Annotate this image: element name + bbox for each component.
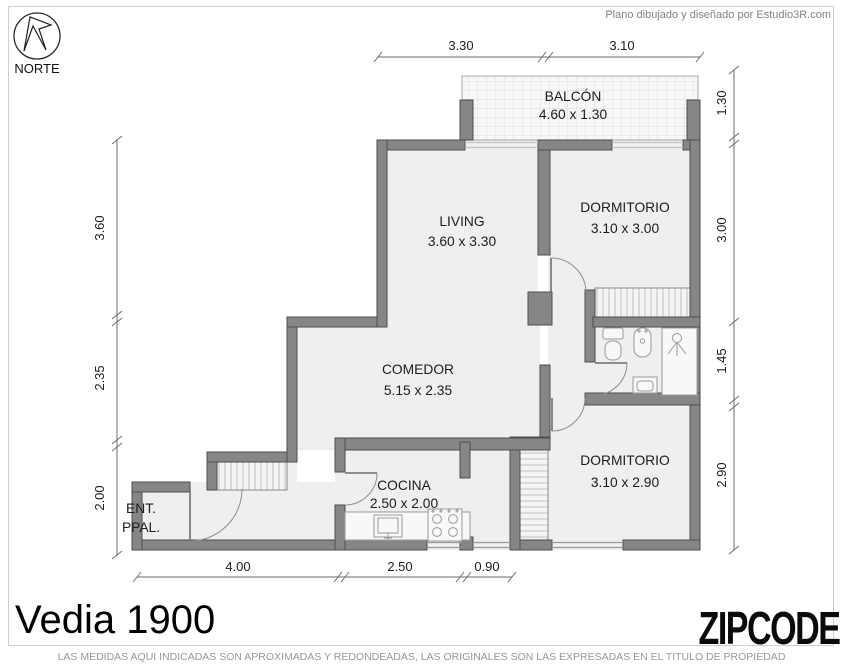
dimension-right: 1.30 3.00 1.45 2.90: [714, 66, 739, 554]
dim-bottom-1: 4.00: [225, 559, 250, 574]
stove-icon: [428, 509, 462, 541]
dim-top-1: 3.30: [448, 38, 473, 53]
kitchen-fixtures: [345, 509, 470, 542]
dim-right-3: 1.45: [714, 348, 729, 373]
closet-dormitorio-1: [595, 288, 690, 317]
disclaimer-text: LAS MEDIDAS AQUI INDICADAS SON APROXIMAD…: [0, 651, 843, 663]
north-arrow-icon: [24, 17, 51, 51]
room-label-cocina: COCINA: [377, 478, 431, 493]
bath-sink-icon: [633, 377, 657, 393]
room-label-living: LIVING: [439, 214, 484, 229]
dim-left-2: 2.35: [92, 365, 107, 390]
toilet-icon: [603, 328, 623, 360]
dimension-left: 3.60 2.35 2.00: [92, 136, 122, 559]
room-label-dormitorio-2: DORMITORIO: [580, 453, 670, 468]
bidet-icon: [634, 328, 651, 357]
room-size-dormitorio-2: 3.10 x 2.90: [591, 475, 660, 490]
dim-bottom-3: 0.90: [474, 559, 499, 574]
room-size-living: 3.60 x 3.30: [428, 234, 497, 249]
room-label-dormitorio-1: DORMITORIO: [580, 200, 670, 215]
dim-bottom-2: 2.50: [387, 559, 412, 574]
room-size-balcon: 4.60 x 1.30: [539, 107, 608, 122]
room-label-balcon: BALCÓN: [545, 88, 602, 104]
closet-dormitorio-2: [520, 447, 548, 543]
compass: NORTE: [14, 13, 60, 76]
dimension-top: 3.30 3.10: [374, 38, 704, 62]
compass-label: NORTE: [14, 61, 60, 76]
room-label-entrada-1: ENT.: [126, 501, 156, 516]
closet-entry: [217, 458, 287, 490]
dim-top-2: 3.10: [609, 38, 634, 53]
page-title: Vedia 1900: [15, 598, 215, 643]
zipcode-logo: ZIPCODE: [698, 601, 839, 655]
dimension-bottom: 4.00 2.50 0.90: [133, 559, 516, 582]
room-label-entrada-2: PPAL.: [122, 520, 160, 535]
shower-icon: [662, 328, 697, 395]
room-size-comedor: 5.15 x 2.35: [384, 383, 453, 398]
dim-left-3: 2.00: [92, 485, 107, 510]
room-label-comedor: COMEDOR: [382, 362, 454, 377]
room-size-dormitorio-1: 3.10 x 3.00: [591, 221, 660, 236]
floor-plan-drawing: 3.30 3.10 4.00 2.50 0.90 3.60 2.35 2.00 …: [0, 0, 843, 600]
dim-right-2: 3.00: [714, 217, 729, 242]
dim-left-1: 3.60: [92, 215, 107, 240]
room-size-cocina: 2.50 x 2.00: [370, 496, 439, 511]
dim-right-1: 1.30: [714, 90, 729, 115]
dim-right-4: 2.90: [714, 462, 729, 487]
